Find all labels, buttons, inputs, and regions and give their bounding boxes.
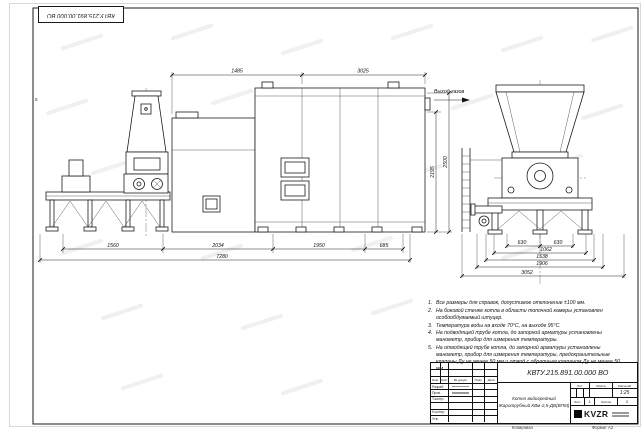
dim-end-overall: 3052 bbox=[521, 270, 533, 276]
scale-label: Масштаб bbox=[613, 383, 636, 388]
note-item: 2. На боковой стенке котла в области топ… bbox=[428, 308, 626, 322]
copied-label: Копировал bbox=[512, 425, 533, 430]
gas-outlet-callout: Выход газов bbox=[434, 89, 470, 103]
product-name: Котел водогрейный Жаротрубный КВм-2,5-ДВ… bbox=[498, 383, 571, 423]
lit-label: Лит. bbox=[571, 383, 590, 388]
note-item: 1. Все размеры для справок, допустимое о… bbox=[428, 300, 626, 307]
corner-stamp: КВТУ.215.891.00.000 ВО bbox=[38, 6, 124, 23]
note-number: 4. bbox=[428, 330, 436, 344]
mass-label: Масса bbox=[590, 383, 613, 388]
row-utv: Утв. bbox=[431, 416, 449, 422]
logo-subtext-lines bbox=[612, 412, 629, 417]
title-block-signature-table: Изм. Лист № докум. Подп. Дата Разраб. Пр… bbox=[431, 363, 498, 423]
end-view-dimensions: 630 630 1062 1538 1906 3052 bbox=[460, 234, 626, 278]
col-list: Лист bbox=[441, 377, 449, 383]
organization-cell: KVZR bbox=[571, 406, 638, 423]
dim-bottom-2: 2034 bbox=[211, 243, 224, 249]
dim-top-1: 1485 bbox=[231, 69, 243, 75]
note-text: Все размеры для справок, допустимое откл… bbox=[436, 300, 626, 307]
dim-overall: 7280 bbox=[216, 254, 228, 260]
kvzr-logo-icon bbox=[574, 410, 582, 418]
dim-bottom-4: 685 bbox=[380, 243, 389, 249]
end-view bbox=[462, 80, 592, 284]
lit-mass-scale-grid: Лит. Масса Масштаб 1:25 bbox=[571, 383, 638, 398]
corner-stamp-text: КВТУ.215.891.00.000 ВО bbox=[47, 12, 115, 18]
col-date: Дата bbox=[485, 377, 497, 383]
row-nkontr: Н.контр. bbox=[431, 410, 449, 415]
kvzr-logo-text: KVZR bbox=[584, 409, 608, 419]
dim-bottom-3: 1950 bbox=[313, 243, 325, 249]
col-sign: Подп. bbox=[473, 377, 485, 383]
note-number: 2. bbox=[428, 308, 436, 322]
note-item: 4. На подводящей трубе котла, до запорно… bbox=[428, 330, 626, 344]
note-text: На подводящей трубе котла, до запорной а… bbox=[436, 330, 626, 344]
frame-zone-label: 8 bbox=[35, 97, 38, 102]
note-text: На боковой стенке котла в области топочн… bbox=[436, 308, 626, 322]
sheet-label: Лист bbox=[571, 398, 585, 405]
sheet-count-row: Лист 1 Листов 2 bbox=[571, 398, 638, 406]
row-razrab: Разраб. bbox=[431, 384, 449, 389]
sheets-value: 2 bbox=[618, 398, 636, 405]
dim-top-2: 3025 bbox=[357, 69, 369, 75]
title-block: Изм. Лист № докум. Подп. Дата Разраб. Пр… bbox=[430, 362, 638, 424]
format-label: Формат А2 bbox=[592, 425, 613, 430]
note-number: 1. bbox=[428, 300, 436, 307]
dim-end-1062: 1062 bbox=[540, 247, 552, 253]
note-text: Температура воды на входе 70°С, на выход… bbox=[436, 323, 626, 330]
drawing-designation: КВТУ.215.891.00.000 ВО bbox=[498, 363, 638, 383]
dim-end-630b: 630 bbox=[554, 240, 563, 246]
row-prov: Пров. bbox=[431, 390, 449, 395]
drawing-sheet: 8 bbox=[0, 0, 644, 430]
col-izm: Изм. bbox=[431, 377, 441, 383]
gas-outlet-arrow-icon bbox=[462, 98, 470, 103]
row-tkontr: Т.контр. bbox=[431, 397, 449, 402]
sheet-value: 1 bbox=[585, 398, 595, 405]
product-name-line2: Жаротрубный КВм-2,5-ДВ(ВПМ) bbox=[499, 403, 570, 410]
dim-height-2: 2500 bbox=[443, 156, 449, 169]
sheets-label: Листов bbox=[595, 398, 618, 405]
signature-mark bbox=[452, 392, 469, 393]
dim-end-630a: 630 bbox=[518, 240, 527, 246]
signature-mark bbox=[452, 386, 469, 387]
col-doc: № докум. bbox=[449, 377, 474, 383]
gas-outlet-label: Выход газов bbox=[434, 89, 465, 95]
dim-bottom-1: 1560 bbox=[107, 243, 119, 249]
dim-end-1906: 1906 bbox=[536, 261, 548, 267]
note-number: 3. bbox=[428, 323, 436, 330]
note-item: 3. Температура воды на входе 70°С, на вы… bbox=[428, 323, 626, 330]
side-view bbox=[46, 82, 430, 238]
dim-height-1: 2195 bbox=[430, 166, 436, 179]
scale-value: 1:25 bbox=[613, 389, 636, 397]
dim-end-1538: 1538 bbox=[536, 254, 548, 260]
